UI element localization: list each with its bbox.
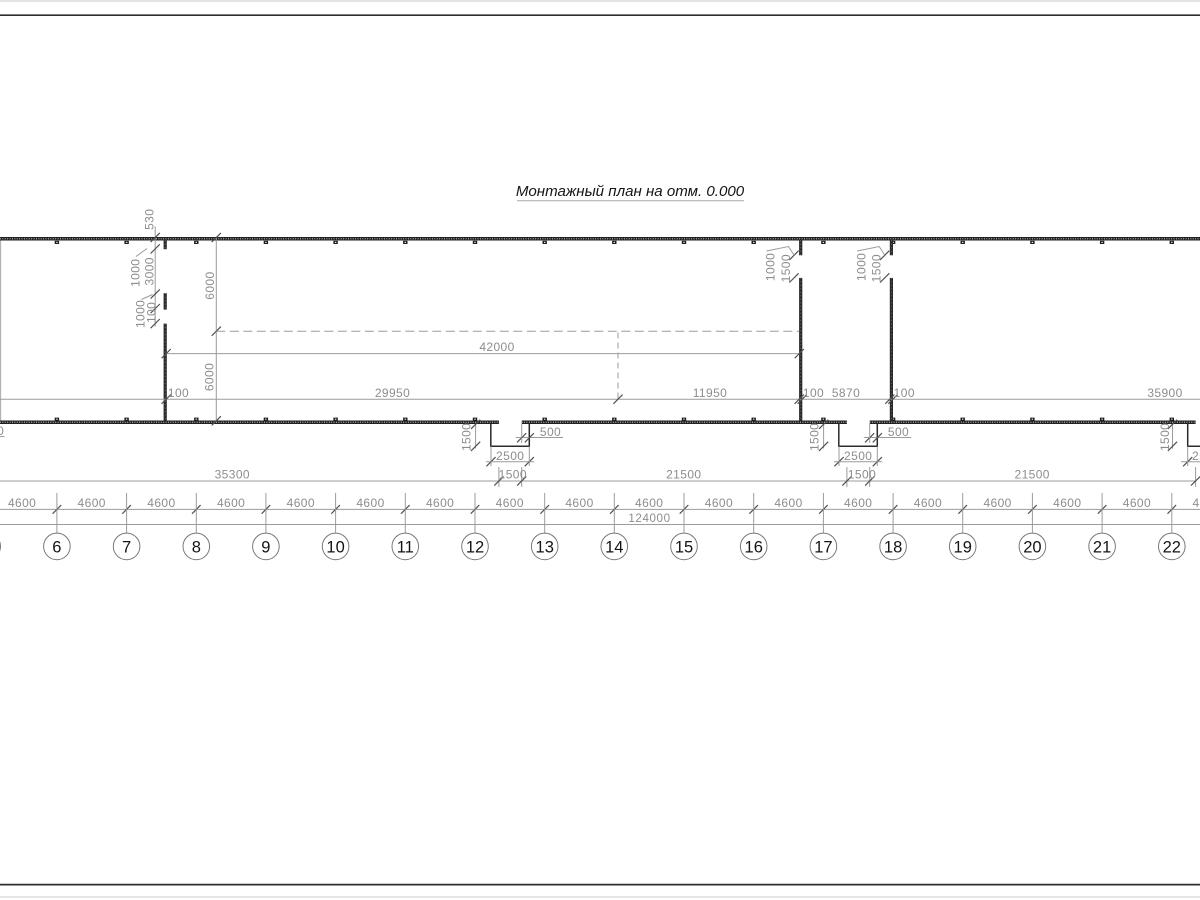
svg-text:4600: 4600 [287,496,315,510]
svg-text:12: 12 [466,538,484,556]
svg-text:1500: 1500 [870,254,884,282]
svg-text:8: 8 [192,538,201,556]
svg-text:4600: 4600 [147,496,175,510]
svg-text:5870: 5870 [832,386,860,400]
svg-text:1000: 1000 [854,253,868,281]
svg-text:2500: 2500 [1192,449,1200,463]
svg-text:100: 100 [168,386,189,400]
svg-text:1500: 1500 [459,423,473,451]
svg-text:124000: 124000 [628,512,670,525]
svg-text:21500: 21500 [666,468,701,482]
svg-text:35900: 35900 [1147,386,1182,400]
svg-text:6: 6 [52,538,61,556]
svg-text:4600: 4600 [8,496,36,510]
svg-text:4600: 4600 [983,496,1011,510]
svg-text:6000: 6000 [203,363,217,391]
svg-text:4600: 4600 [914,496,942,510]
svg-text:4600: 4600 [426,496,454,510]
svg-text:500: 500 [888,425,909,439]
svg-text:3000: 3000 [142,257,156,285]
svg-text:4600: 4600 [1053,496,1081,510]
svg-text:1500: 1500 [1158,423,1172,451]
svg-text:9: 9 [261,538,270,556]
svg-text:7: 7 [122,538,131,556]
svg-text:19: 19 [954,538,972,556]
svg-text:20: 20 [1023,538,1041,556]
svg-text:2500: 2500 [844,449,872,463]
svg-text:11: 11 [397,538,414,556]
svg-text:4600: 4600 [496,496,524,510]
svg-text:21500: 21500 [1015,468,1050,482]
svg-text:100: 100 [894,386,915,400]
svg-text:4600: 4600 [565,496,593,510]
svg-text:29950: 29950 [375,386,410,400]
svg-text:18: 18 [884,538,902,556]
svg-text:4600: 4600 [635,496,663,510]
svg-text:1500: 1500 [499,468,527,482]
svg-text:4600: 4600 [774,496,802,510]
svg-text:10: 10 [326,538,344,556]
svg-text:4600: 4600 [1192,496,1200,510]
svg-text:100: 100 [803,386,824,400]
svg-text:4600: 4600 [217,496,245,510]
svg-text:1500: 1500 [779,254,793,282]
svg-text:Монтажный план на отм. 0.000: Монтажный план на отм. 0.000 [516,183,745,200]
svg-text:4600: 4600 [78,496,106,510]
svg-text:14: 14 [605,538,623,556]
svg-text:17: 17 [814,538,832,556]
svg-text:13: 13 [536,538,554,556]
svg-text:2500: 2500 [496,449,524,463]
svg-text:1500: 1500 [807,423,821,451]
svg-text:1000: 1000 [764,253,778,281]
svg-text:530: 530 [142,209,156,230]
svg-text:16: 16 [745,538,763,556]
svg-text:21: 21 [1093,538,1111,556]
svg-text:15: 15 [675,538,693,556]
svg-text:4600: 4600 [1123,496,1151,510]
svg-text:500: 500 [540,425,561,439]
svg-text:35300: 35300 [215,468,250,482]
svg-text:1500: 1500 [848,468,876,482]
svg-text:1000: 1000 [129,259,143,287]
svg-text:22: 22 [1163,538,1181,556]
svg-text:42000: 42000 [479,340,514,354]
svg-text:4600: 4600 [844,496,872,510]
svg-text:4600: 4600 [356,496,384,510]
svg-text:11950: 11950 [693,386,727,400]
svg-text:500: 500 [0,424,4,438]
svg-text:6000: 6000 [203,271,217,299]
svg-text:100: 100 [144,302,158,323]
svg-text:4600: 4600 [705,496,733,510]
